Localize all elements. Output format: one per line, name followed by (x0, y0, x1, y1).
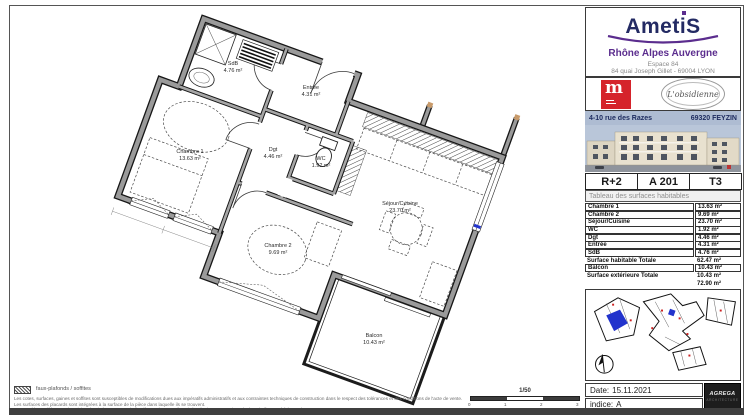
table-row-balcon: Balcon10.43 m² (585, 264, 741, 272)
unit-type: T3 (689, 173, 742, 190)
project-city: 69320 FEYZIN (691, 115, 737, 122)
brand-box: AmetiS Rhône Alpes Auvergne Espace 84 84… (585, 7, 741, 77)
unit-code: A 201 (637, 173, 690, 190)
brand-region: Rhône Alpes Auvergne (586, 48, 740, 59)
scale-tick: 3 (576, 402, 579, 407)
brand-address-line1: Espace 84 (586, 61, 740, 68)
table-row: Séjour/Cuisine23.70 m² (585, 218, 741, 226)
room-label-sdb: SdB4.76 m² (224, 61, 243, 75)
date-row: Date: 15.11.2021 (585, 383, 703, 397)
architect-subtitle: ARCHITECTURE (706, 398, 738, 402)
table-total-habitable: Surface habitable Totale62.47 m² (585, 256, 741, 264)
scale-tick: 0 (468, 402, 471, 407)
room-label-sejour: Séjour/Cuisine23.70 m² (382, 201, 418, 215)
table-row: SdB4.76 m² (585, 249, 741, 257)
scale-tick: 2 (540, 402, 543, 407)
date-label: Date: (590, 386, 609, 395)
red-monogram-logo: m (601, 80, 631, 109)
brand-address-line2: 84 quai Joseph Gillet - 69004 LYON (586, 68, 740, 75)
plan-sheet: SdB4.76 m² Entrée4.31 m² Dgt4.46 m² WC1.… (0, 0, 750, 420)
scale-bar (470, 396, 580, 401)
disclaimer-line: Les cotes, surfaces, gaines et soffites … (14, 396, 469, 401)
project-street: 4-10 rue des Razes (589, 115, 652, 122)
table-row: Dgt4.46 m² (585, 234, 741, 242)
north-arrow (596, 355, 614, 374)
project-address-band: 4-10 rue des Razes 69320 FEYZIN (585, 111, 741, 125)
unit-floor: R+2 (585, 173, 638, 190)
floor-plan-drawing (0, 0, 583, 418)
obsidienne-logo: L'obsidienne (661, 78, 725, 110)
table-row: Chambre 29.69 m² (585, 211, 741, 219)
legend-label: faux-plafonds / soffites (36, 386, 91, 392)
brand-name: AmetiS (586, 16, 740, 37)
architect-name: AGREGA (710, 391, 736, 397)
partner-logos-box: m L'obsidienne (585, 77, 741, 111)
room-label-wc: WC1.92 m² (312, 156, 331, 170)
scale-label: 1/50 (470, 388, 580, 394)
surface-table: Chambre 113.63 m² Chambre 29.69 m² Séjou… (585, 203, 741, 287)
room-label-chambre2: Chambre 29.69 m² (264, 243, 291, 257)
date-value: 15.11.2021 (612, 386, 651, 395)
surface-table-title: Tableau des surfaces habitables (585, 190, 741, 202)
brand-trademark-square (682, 11, 686, 15)
room-label-dgt: Dgt4.46 m² (264, 147, 283, 161)
legend-hatch-swatch (14, 386, 31, 394)
sheet-bottom-band (9, 408, 744, 415)
room-label-chambre1: Chambre 113.63 m² (176, 149, 203, 163)
table-row: Entrée4.31 m² (585, 241, 741, 249)
scale-tick: 1 (504, 402, 507, 407)
site-key-plan (585, 289, 741, 381)
unit-identification-row: R+2 A 201 T3 (585, 173, 741, 190)
table-total-exterieure: Surface extérieure Totale10.43 m² (585, 272, 741, 280)
architect-logo: AGREGA ARCHITECTURE (704, 383, 741, 410)
room-label-balcon: Balcon10.43 m² (363, 333, 385, 347)
room-label-entree: Entrée4.31 m² (302, 85, 321, 99)
table-row: WC1.92 m² (585, 226, 741, 234)
building-photo (585, 125, 741, 172)
table-row: Chambre 113.63 m² (585, 203, 741, 211)
table-total-general: 72.90 m² (585, 279, 741, 287)
